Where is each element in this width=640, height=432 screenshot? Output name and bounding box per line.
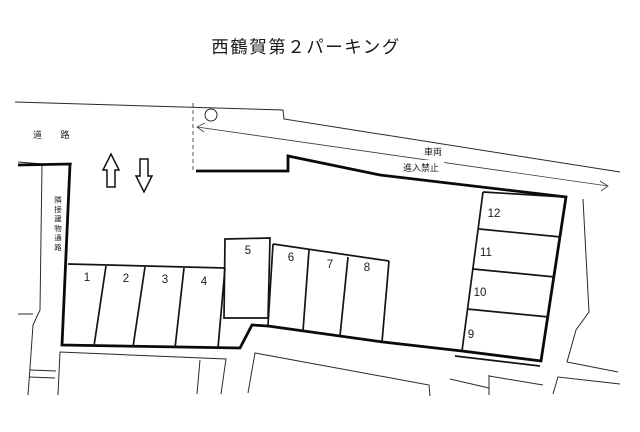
- stall-6-label: 6: [288, 252, 294, 264]
- no-entry-label-line1: 車両: [424, 146, 442, 157]
- stall-1-label: 1: [84, 272, 90, 284]
- stall-3-label: 3: [162, 274, 168, 286]
- parking-map-diagram: 西鶴賀第２パーキング 道 路 車両 進入禁止: [0, 0, 640, 432]
- page-background: [0, 0, 640, 432]
- parking-map-page: 西鶴賀第２パーキング 道 路 車両 進入禁止: [0, 0, 640, 432]
- stall-4-label: 4: [201, 276, 208, 288]
- passage-label: 隣接建物通路: [53, 195, 62, 253]
- stall-10-label: 10: [474, 287, 487, 299]
- stall-5-label: 5: [245, 245, 251, 257]
- stall-12-label: 12: [488, 208, 501, 220]
- stall-2-label: 2: [123, 273, 129, 285]
- stall-11-label: 11: [480, 247, 492, 259]
- stall-8-label: 8: [364, 262, 370, 274]
- stall-9-label: 9: [468, 329, 474, 341]
- no-entry-label-line2: 進入禁止: [403, 162, 439, 173]
- page-title: 西鶴賀第２パーキング: [211, 37, 400, 57]
- road-label: 道 路: [33, 129, 78, 140]
- stall-7-label: 7: [327, 259, 333, 271]
